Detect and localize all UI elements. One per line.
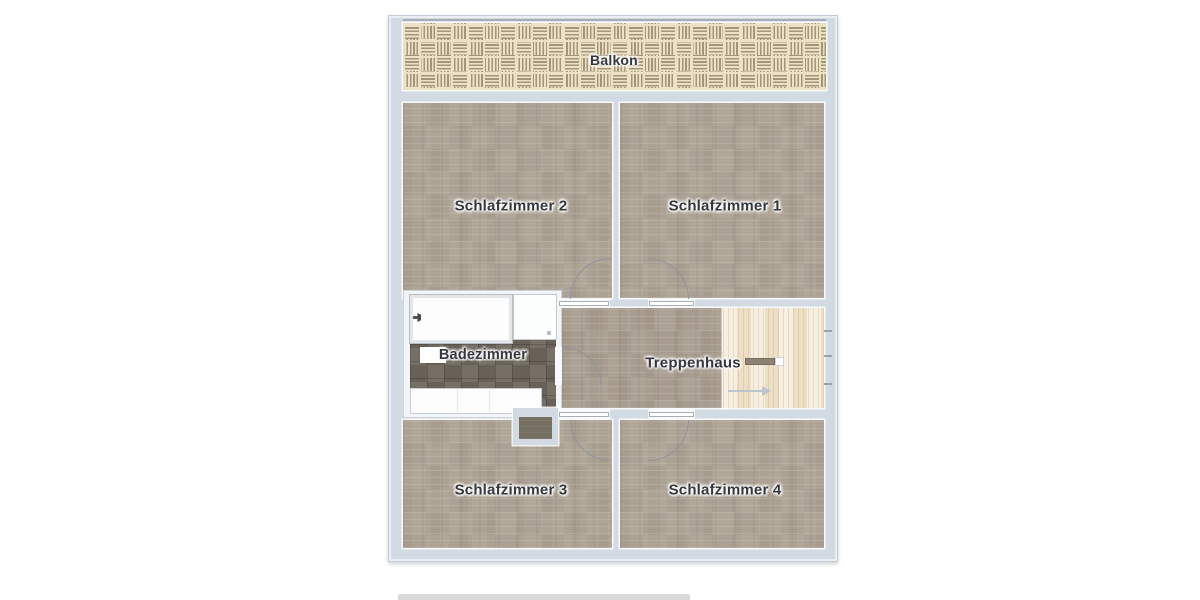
door-schlafzimmer-2 (558, 298, 610, 308)
shower (513, 294, 557, 340)
stair-handrail-post (775, 357, 784, 366)
vanity-divider (457, 390, 458, 412)
chimney-shaft (519, 417, 552, 439)
bathtub (409, 294, 513, 344)
floor-plan: Balkon Schlafzimmer 2 Schlafzimmer 1 Bad… (388, 15, 838, 562)
stair-wall-tick (824, 383, 832, 385)
shower-drain-icon (547, 331, 551, 335)
door-leaf (559, 301, 609, 306)
room-label-schlafzimmer-2: Schlafzimmer 2 (455, 198, 568, 215)
room-label-treppenhaus: Treppenhaus (645, 355, 741, 372)
door-schlafzimmer-1 (648, 298, 695, 308)
chimney-niche (513, 408, 558, 445)
room-label-balkon: Balkon (590, 52, 638, 68)
room-label-schlafzimmer-4: Schlafzimmer 4 (669, 482, 782, 499)
door-leaf (649, 412, 694, 417)
door-schlafzimmer-3 (558, 408, 610, 420)
balcony-railing (403, 19, 826, 21)
next-floorplan-edge (398, 594, 690, 600)
stair-direction-arrow (728, 390, 762, 392)
room-label-badezimmer: Badezimmer (439, 347, 527, 363)
floor-plan-page: Balkon Schlafzimmer 2 Schlafzimmer 1 Bad… (0, 0, 1200, 600)
door-schlafzimmer-4 (648, 408, 695, 420)
room-label-schlafzimmer-3: Schlafzimmer 3 (455, 482, 568, 499)
stair-wall-tick (824, 330, 832, 332)
door-leaf (559, 412, 609, 417)
door-leaf (649, 301, 694, 306)
stair-wall-tick (824, 355, 832, 357)
faucet-icon (413, 313, 421, 322)
stair-direction-arrow-head-icon (762, 386, 771, 396)
vanity-divider (489, 390, 490, 412)
stair-handrail (745, 358, 775, 365)
room-label-schlafzimmer-1: Schlafzimmer 1 (669, 198, 782, 215)
door-badezimmer (555, 347, 562, 385)
